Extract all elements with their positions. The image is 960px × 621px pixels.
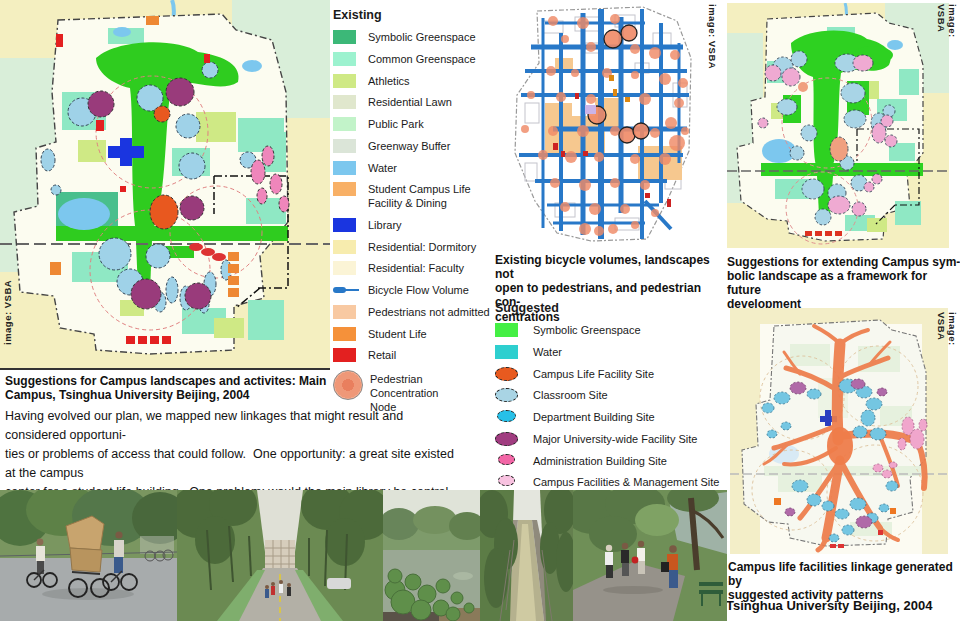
extend-map-caption: Suggestions for extending Campus sym- bo… bbox=[727, 255, 960, 312]
legend-item: Major University-wide Facility Site bbox=[495, 432, 730, 447]
legend-item: Residential Lawn bbox=[333, 95, 493, 110]
swatch-suggested-water-icon bbox=[495, 345, 518, 359]
major-university-wide-facility-site-icon bbox=[495, 432, 518, 446]
legend-suggested-title: Suggested bbox=[495, 301, 730, 315]
legend-item: Symbolic Greenspace bbox=[333, 30, 493, 45]
photo-tree-lined-avenue bbox=[177, 490, 383, 621]
main-campus-map-image bbox=[0, 0, 330, 368]
legend-item: Administration Building Site bbox=[495, 454, 730, 469]
photo-lakeside-path bbox=[573, 490, 727, 621]
swatch-athletics-icon bbox=[333, 74, 356, 88]
legend-item: Residential: Dormitory bbox=[333, 240, 493, 255]
administration-building-site-icon bbox=[498, 454, 515, 465]
swatch-greenway-buffer-icon bbox=[333, 139, 356, 153]
swatch-symbolic-greenspace-icon bbox=[333, 30, 356, 44]
legend-item: Bicycle Flow Volume bbox=[333, 283, 493, 298]
page: image: VSBA Suggestions for Campus lands… bbox=[0, 0, 960, 621]
main-map-caption: Suggestions for Campus landscapes and ac… bbox=[5, 374, 350, 402]
photo-bicycle-cart-street bbox=[0, 490, 177, 621]
bicycle-volumes-map-image bbox=[495, 3, 710, 248]
photo-lotus-pond bbox=[383, 490, 480, 621]
legend-item: Department Building Site bbox=[495, 410, 730, 425]
bicycle-flow-volume-icon bbox=[333, 283, 356, 297]
swatch-library-icon bbox=[333, 218, 356, 232]
legend-existing-title: Existing bbox=[333, 8, 493, 22]
swatch-residential-dormitory-icon bbox=[333, 240, 356, 254]
swatch-residential-faculty-icon bbox=[333, 261, 356, 275]
legend-item: Student Campus Life Facility & Dining bbox=[333, 182, 493, 211]
legend-item: Campus Facilities & Management Site bbox=[495, 475, 730, 490]
swatch-water-icon bbox=[333, 161, 356, 175]
legend-item: Greenway Buffer bbox=[333, 139, 493, 154]
linkage-map-image bbox=[730, 308, 948, 554]
campus-facilities-management-site-icon bbox=[498, 475, 515, 486]
main-map-rule bbox=[0, 368, 330, 370]
legend-item: Athletics bbox=[333, 74, 493, 89]
swatch-public-park-icon bbox=[333, 117, 356, 131]
extend-landscape-map-image bbox=[727, 3, 949, 248]
legend-item: Symbolic Greenspace bbox=[495, 323, 730, 338]
swatch-pedestrians-not-admitted-icon bbox=[333, 305, 356, 319]
campus-life-facility-site-icon bbox=[495, 367, 518, 381]
legend-item: Classroom Site bbox=[495, 388, 730, 403]
swatch-student-campus-life-icon bbox=[333, 182, 356, 196]
legend-item: Campus Life Facility Site bbox=[495, 367, 730, 382]
legend-item: Library bbox=[333, 218, 493, 233]
main-map-credit: image: VSBA bbox=[2, 280, 13, 345]
legend-suggested: Suggested Symbolic Greenspace Water Camp… bbox=[495, 301, 730, 497]
legend-item: Residential: Faculty bbox=[333, 261, 493, 276]
linkage-map-credit: image: VSBA bbox=[936, 312, 958, 346]
swatch-suggested-symbolic-greenspace-icon bbox=[495, 323, 518, 337]
legend-item: Student Life bbox=[333, 327, 493, 342]
pedestrian-concentration-node-icon bbox=[333, 370, 363, 400]
linkage-map-caption: Campus life facilities linkage generated… bbox=[728, 560, 960, 602]
legend-item: Water bbox=[495, 345, 730, 360]
legend-item: Pedestrians not admitted bbox=[333, 305, 493, 320]
photo-campus-canal bbox=[480, 490, 573, 621]
swatch-common-greenspace-icon bbox=[333, 52, 356, 66]
extend-map-credit: image: VSBA bbox=[936, 4, 958, 38]
source-line: Tsinghua University Beijing, 2004 bbox=[726, 598, 932, 613]
legend-item: Water bbox=[333, 161, 493, 176]
bicycle-map-credit: image: VSBA bbox=[707, 4, 718, 69]
legend-item: Retail bbox=[333, 348, 493, 363]
classroom-site-icon bbox=[495, 388, 518, 402]
swatch-student-life-icon bbox=[333, 327, 356, 341]
swatch-retail-icon bbox=[333, 348, 356, 362]
department-building-site-icon bbox=[497, 410, 516, 422]
legend-existing: Existing Symbolic Greenspace Common Gree… bbox=[333, 8, 493, 421]
legend-item: Common Greenspace bbox=[333, 52, 493, 67]
legend-item: Public Park bbox=[333, 117, 493, 132]
swatch-residential-lawn-icon bbox=[333, 95, 356, 109]
